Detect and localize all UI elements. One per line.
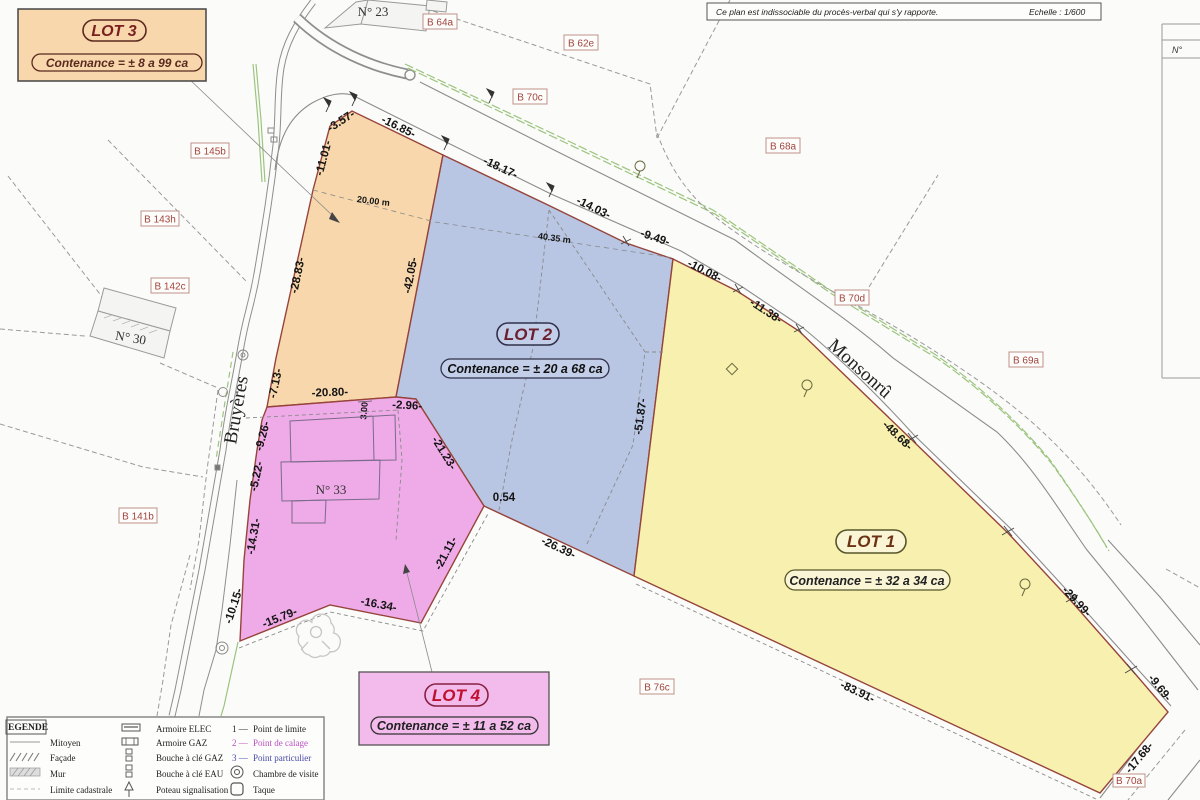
svg-text:B 69a: B 69a bbox=[1013, 356, 1040, 367]
svg-text:Chambre de visite: Chambre de visite bbox=[253, 769, 318, 779]
svg-text:Bouche à clé GAZ: Bouche à clé GAZ bbox=[156, 753, 223, 763]
svg-text:Contenance = ± 20 a 68 ca: Contenance = ± 20 a 68 ca bbox=[447, 362, 602, 376]
svg-text:Poteau signalisation: Poteau signalisation bbox=[156, 785, 229, 795]
svg-text:N° 33: N° 33 bbox=[316, 482, 347, 497]
svg-text:B 145b: B 145b bbox=[194, 147, 226, 158]
svg-text:-2.96-: -2.96- bbox=[392, 399, 423, 413]
svg-text:B 76c: B 76c bbox=[644, 683, 670, 694]
svg-text:-20.80-: -20.80- bbox=[311, 386, 348, 399]
svg-text:LOT 4: LOT 4 bbox=[432, 686, 481, 705]
svg-text:Mitoyen: Mitoyen bbox=[50, 738, 81, 748]
svg-text:Point de calage: Point de calage bbox=[253, 738, 308, 748]
svg-text:2 —: 2 — bbox=[232, 738, 249, 748]
svg-text:B 142c: B 142c bbox=[154, 282, 185, 293]
svg-text:B 64a: B 64a bbox=[427, 18, 454, 29]
svg-text:Façade: Façade bbox=[50, 753, 75, 763]
svg-text:Point de limite: Point de limite bbox=[253, 724, 306, 734]
svg-text:B 70d: B 70d bbox=[839, 294, 865, 305]
svg-text:Taque: Taque bbox=[253, 785, 275, 795]
svg-text:B 70a: B 70a bbox=[1116, 776, 1143, 787]
svg-text:Contenance = ± 32 a 34 ca: Contenance = ± 32 a 34 ca bbox=[789, 574, 944, 588]
svg-text:B 141b: B 141b bbox=[122, 512, 154, 523]
svg-text:Armoire GAZ: Armoire GAZ bbox=[156, 738, 207, 748]
svg-text:1 —: 1 — bbox=[232, 724, 249, 734]
svg-text:Ce plan est indissociable du p: Ce plan est indissociable du procès-verb… bbox=[716, 7, 938, 17]
svg-text:Armoire ELEC: Armoire ELEC bbox=[156, 724, 211, 734]
svg-text:Contenance = ± 8 a 99 ca: Contenance = ± 8 a 99 ca bbox=[46, 56, 189, 70]
svg-text:B 62e: B 62e bbox=[568, 39, 595, 50]
svg-text:Limite cadastrale: Limite cadastrale bbox=[50, 785, 112, 795]
svg-text:Contenance = ± 11 a 52 ca: Contenance = ± 11 a 52 ca bbox=[377, 719, 531, 733]
svg-text:N° 23: N° 23 bbox=[358, 4, 389, 19]
svg-text:N°: N° bbox=[1172, 45, 1182, 55]
svg-text:LOT 3: LOT 3 bbox=[91, 23, 136, 40]
svg-text:EGENDE: EGENDE bbox=[8, 723, 48, 733]
svg-text:0.54: 0.54 bbox=[493, 492, 516, 504]
svg-text:Bouche à clé EAU: Bouche à clé EAU bbox=[156, 769, 224, 779]
svg-text:B 68a: B 68a bbox=[770, 142, 797, 153]
svg-text:B 70c: B 70c bbox=[517, 93, 543, 104]
svg-text:Mur: Mur bbox=[50, 769, 66, 779]
svg-text:Echelle : 1/600: Echelle : 1/600 bbox=[1029, 7, 1086, 17]
svg-text:LOT 2: LOT 2 bbox=[504, 325, 553, 344]
svg-text:3 —: 3 — bbox=[232, 753, 249, 763]
svg-text:LOT 1: LOT 1 bbox=[847, 532, 895, 551]
svg-text:Point particulier: Point particulier bbox=[253, 753, 311, 763]
svg-text:B 143h: B 143h bbox=[144, 215, 176, 226]
